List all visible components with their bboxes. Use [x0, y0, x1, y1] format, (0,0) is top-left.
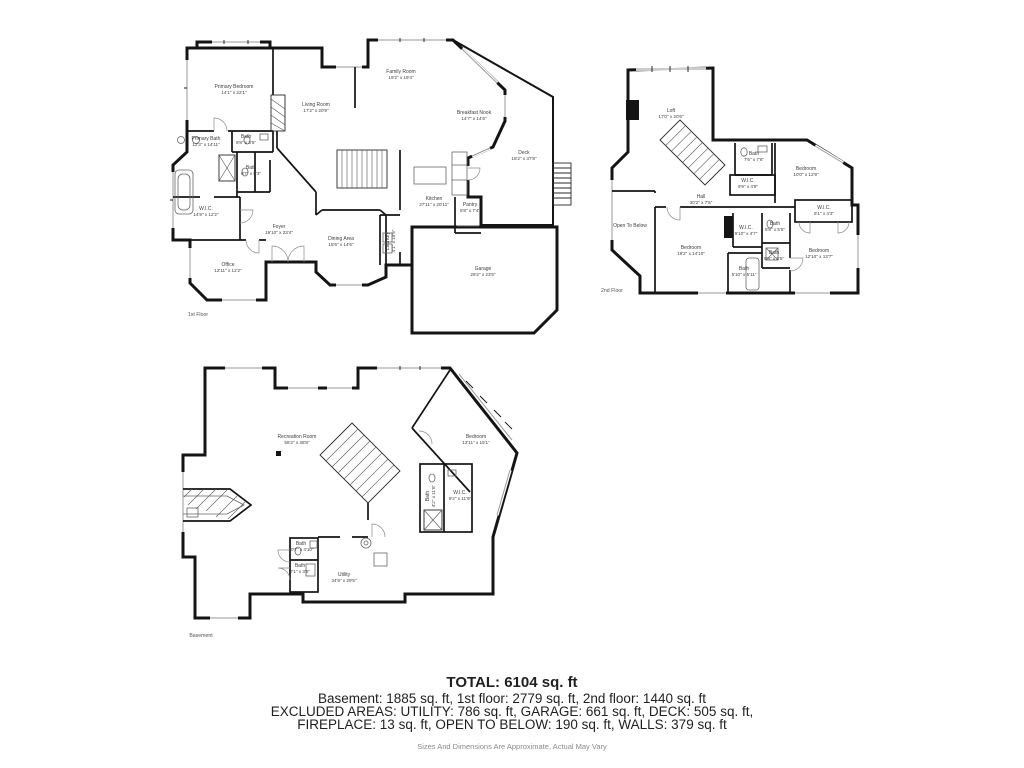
disclaimer-text: Sizes And Dimensions Are Approximate, Ac… [0, 742, 1024, 751]
first-floor-plan [170, 38, 571, 333]
second-floor-plan [612, 66, 858, 293]
floorplan-page: Primary Bedroom14'1" x 22'1"Living Room1… [0, 0, 1024, 768]
basement-plan [183, 366, 517, 618]
total-area-text: TOTAL: 6104 sq. ft [0, 674, 1024, 691]
floor-plan-drawing [0, 0, 1024, 768]
excluded-areas-text-2: FIREPLACE: 13 sq. ft, OPEN TO BELOW: 190… [0, 717, 1024, 732]
